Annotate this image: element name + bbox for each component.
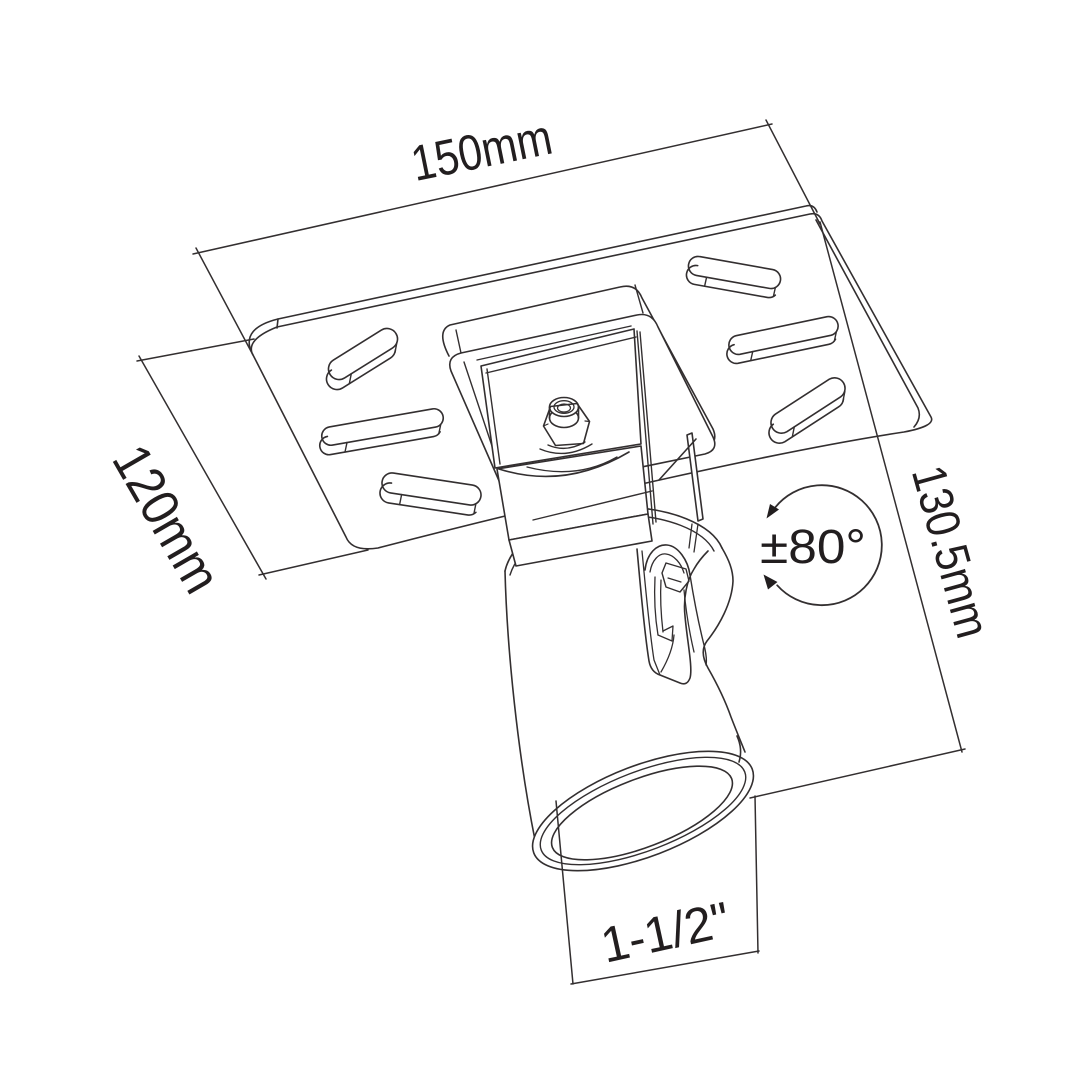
svg-text:120mm: 120mm bbox=[101, 435, 232, 603]
svg-text:130.5mm: 130.5mm bbox=[901, 460, 999, 644]
svg-text:±80°: ±80° bbox=[760, 521, 866, 574]
svg-text:1-1/2": 1-1/2" bbox=[596, 891, 735, 973]
svg-text:150mm: 150mm bbox=[406, 109, 556, 192]
